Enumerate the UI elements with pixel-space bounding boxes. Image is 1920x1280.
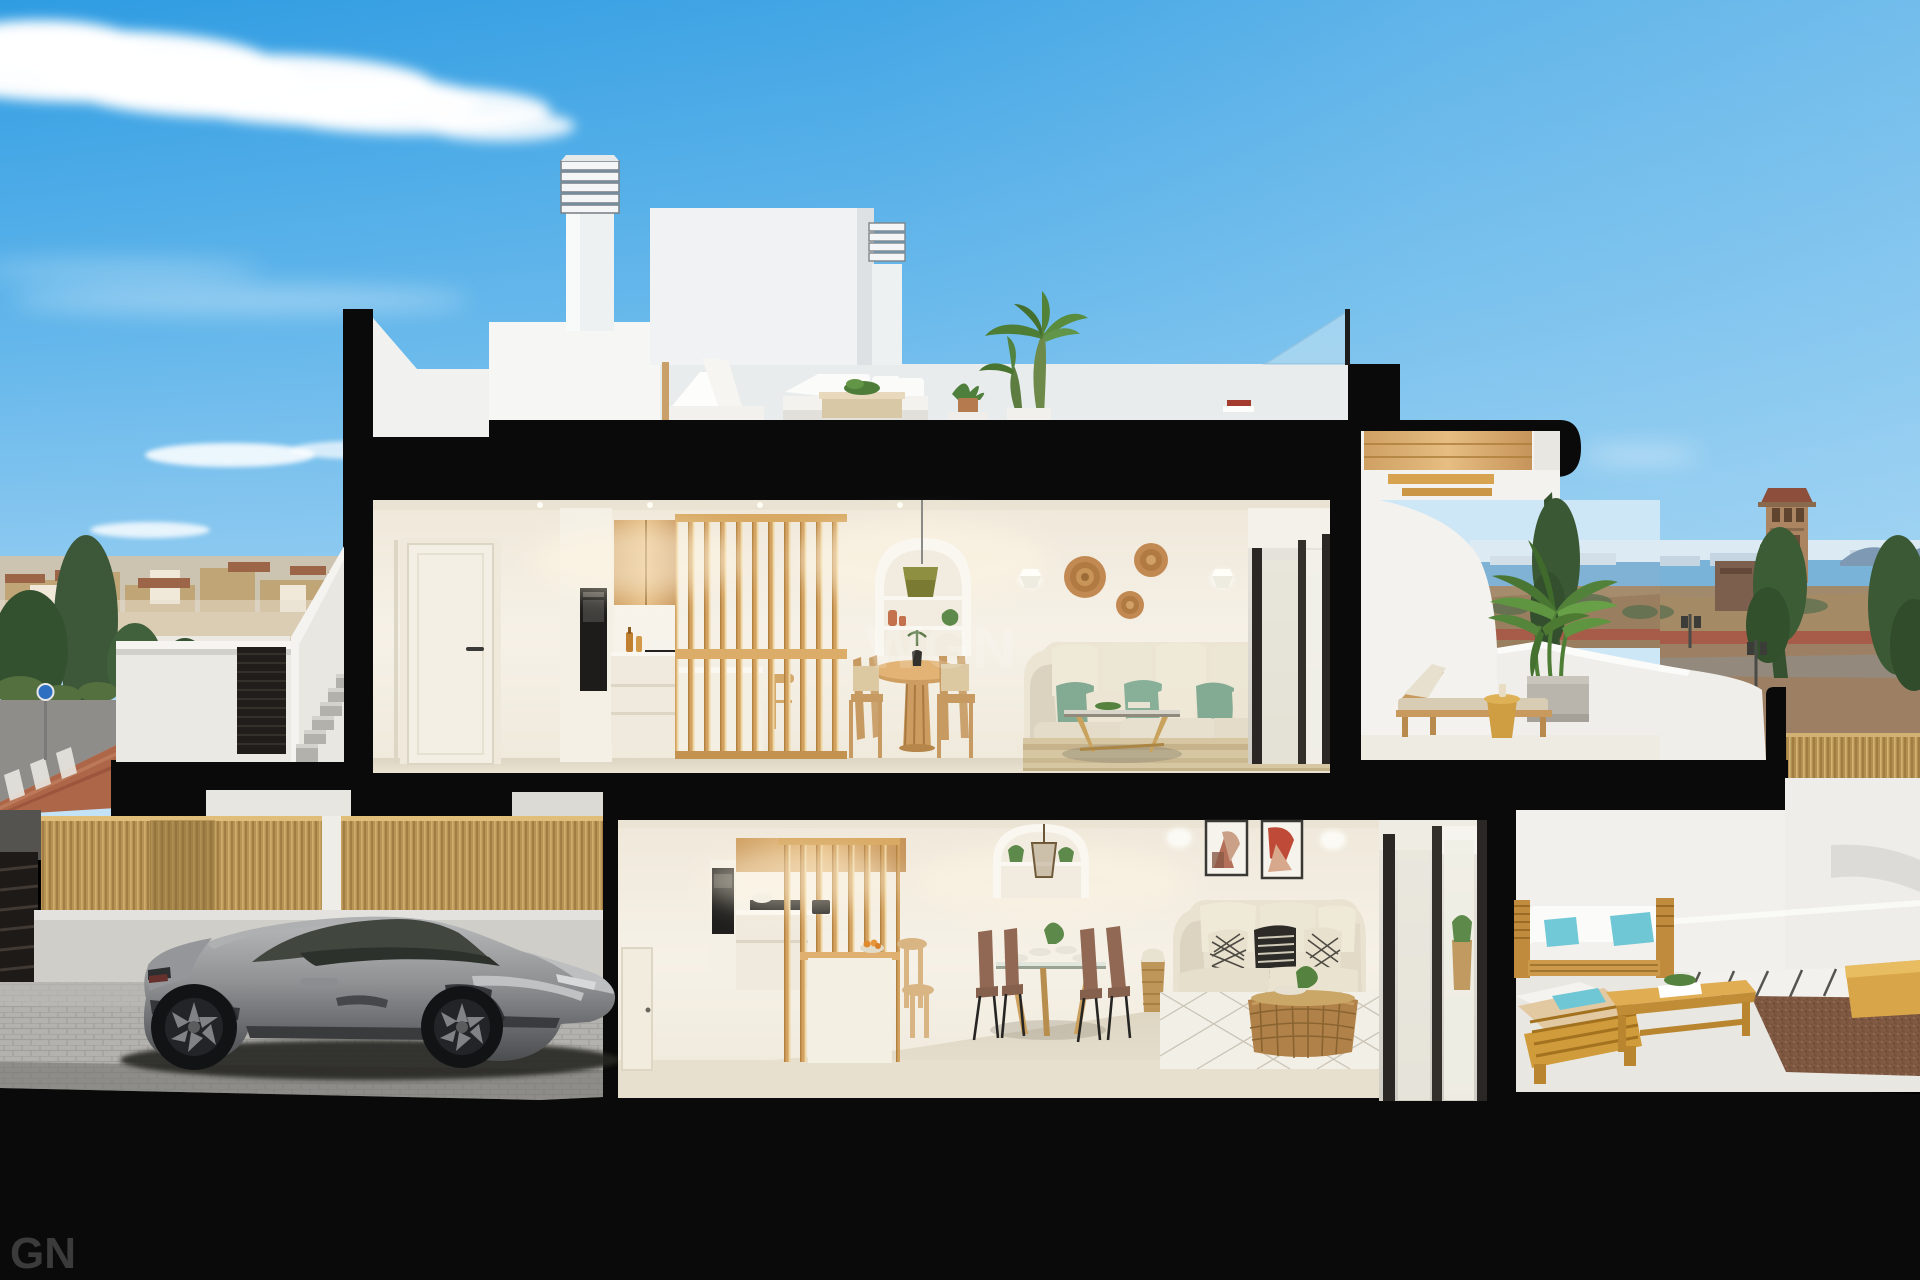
svg-text:WGN: WGN — [865, 614, 1018, 681]
svg-text:GN: GN — [10, 1229, 76, 1278]
